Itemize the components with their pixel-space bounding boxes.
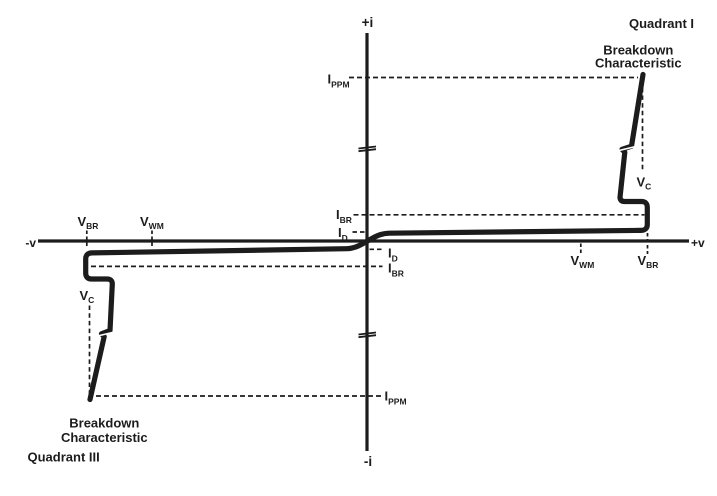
svg-text:+v: +v <box>691 236 705 250</box>
svg-text:Characteristic: Characteristic <box>61 430 148 445</box>
svg-text:Quadrant I: Quadrant I <box>629 16 694 31</box>
svg-text:-i: -i <box>364 454 372 469</box>
svg-text:-v: -v <box>25 236 36 250</box>
svg-text:Quadrant III: Quadrant III <box>28 449 100 464</box>
svg-text:+i: +i <box>362 15 374 30</box>
svg-text:Characteristic: Characteristic <box>595 55 682 70</box>
svg-text:Breakdown: Breakdown <box>69 416 139 431</box>
